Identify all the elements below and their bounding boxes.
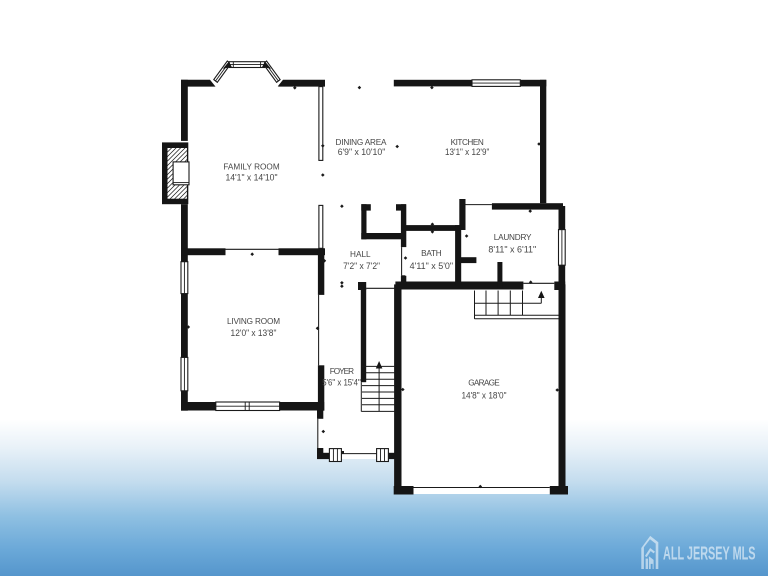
svg-text:BATH: BATH [421,249,442,258]
svg-text:HALL: HALL [350,250,371,259]
svg-text:4'11" x 5'0": 4'11" x 5'0" [410,261,453,271]
svg-text:14'1" x 14'10": 14'1" x 14'10" [225,173,277,183]
svg-text:FAMILY ROOM: FAMILY ROOM [223,163,279,172]
svg-text:8'11" x 6'11": 8'11" x 6'11" [488,244,536,254]
svg-text:12'0" x 13'8": 12'0" x 13'8" [231,328,277,338]
svg-text:LAUNDRY: LAUNDRY [494,233,532,242]
svg-text:5'6" x 15'4": 5'6" x 15'4" [322,378,361,388]
svg-text:DINING AREA: DINING AREA [336,138,387,147]
svg-text:KITCHEN: KITCHEN [451,138,484,147]
svg-text:6'9" x 10'10": 6'9" x 10'10" [338,147,386,157]
svg-text:13'1" x 12'9": 13'1" x 12'9" [445,147,489,157]
svg-text:14'8" x 18'0": 14'8" x 18'0" [461,390,506,400]
svg-text:LIVING ROOM: LIVING ROOM [227,317,280,326]
svg-text:FOYER: FOYER [330,367,354,376]
svg-text:ALL JERSEY MLS: ALL JERSEY MLS [663,543,756,564]
svg-text:GARAGE: GARAGE [468,379,500,388]
svg-text:7'2" x 7'2": 7'2" x 7'2" [343,261,380,271]
